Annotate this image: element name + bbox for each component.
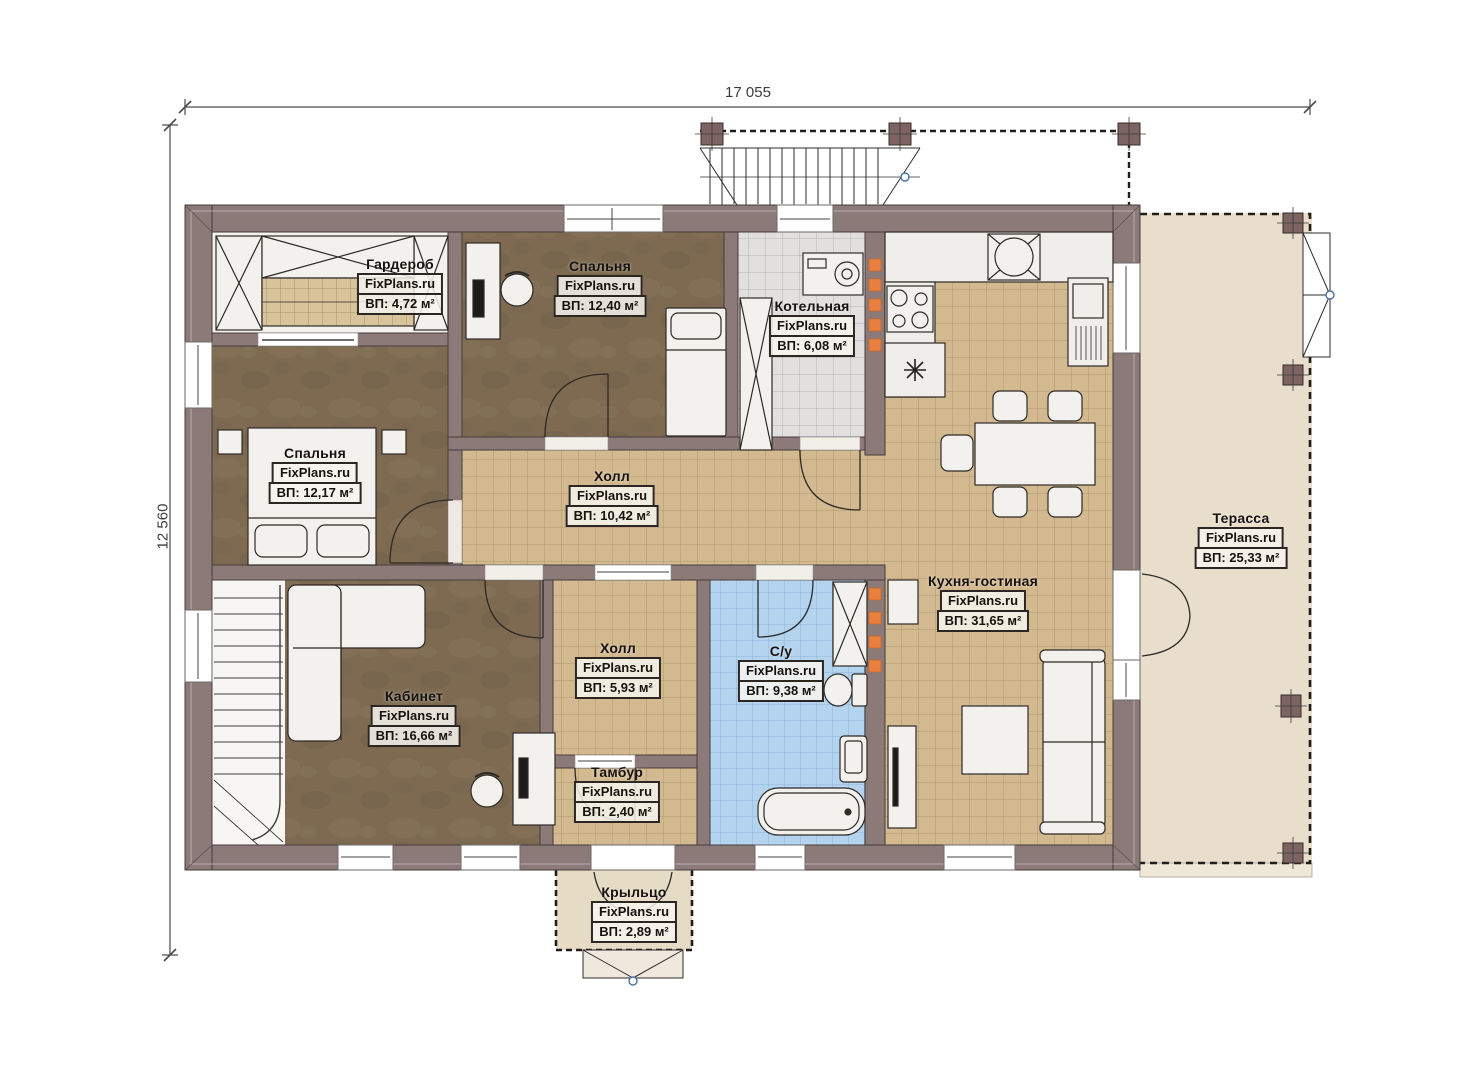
- hall-main-floor: [462, 450, 885, 565]
- watermark-badge: FixPlans.ru: [1198, 527, 1284, 549]
- room-title: Кабинет: [368, 688, 461, 704]
- porch-step: [583, 950, 683, 985]
- watermark-badge: FixPlans.ru: [738, 660, 824, 682]
- deck-stair: [695, 117, 1146, 213]
- watermark-badge: FixPlans.ru: [591, 901, 677, 923]
- dimension-width: 17 055: [703, 84, 793, 101]
- room-area: ВП: 12,17 м²: [269, 482, 362, 504]
- watermark-badge: FixPlans.ru: [940, 590, 1026, 612]
- room-label-bedroom-left: Спальня FixPlans.ru ВП: 12,17 м²: [269, 445, 362, 504]
- room-label-hall-small: Холл FixPlans.ru ВП: 5,93 м²: [575, 640, 661, 699]
- room-area: ВП: 5,93 м²: [575, 677, 661, 699]
- room-area: ВП: 2,40 м²: [574, 801, 660, 823]
- room-title: Холл: [575, 640, 661, 656]
- room-title: Кухня-гостиная: [928, 573, 1038, 589]
- room-title: Терасса: [1195, 510, 1288, 526]
- room-title: Котельная: [769, 298, 855, 314]
- room-label-hall-main: Холл FixPlans.ru ВП: 10,42 м²: [566, 468, 659, 527]
- room-label-bathroom: С/у FixPlans.ru ВП: 9,38 м²: [738, 643, 824, 702]
- watermark-badge: FixPlans.ru: [557, 275, 643, 297]
- terrace-outdoor-stair: [1303, 233, 1334, 357]
- room-label-vestibule: Тамбур FixPlans.ru ВП: 2,40 м²: [574, 764, 660, 823]
- room-area: ВП: 9,38 м²: [738, 680, 824, 702]
- post-ticks: [695, 117, 1146, 151]
- room-label-terrace: Терасса FixPlans.ru ВП: 25,33 м²: [1195, 510, 1288, 569]
- room-area: ВП: 16,66 м²: [368, 725, 461, 747]
- room-area: ВП: 12,40 м²: [554, 295, 647, 317]
- floor-plan: Гардероб FixPlans.ru ВП: 4,72 м² Спальня…: [0, 0, 1473, 1080]
- watermark-badge: FixPlans.ru: [272, 462, 358, 484]
- watermark-badge: FixPlans.ru: [569, 485, 655, 507]
- room-title: Спальня: [269, 445, 362, 461]
- room-area: ВП: 10,42 м²: [566, 505, 659, 527]
- room-label-office: Кабинет FixPlans.ru ВП: 16,66 м²: [368, 688, 461, 747]
- dimension-height: 12 560: [155, 490, 172, 564]
- watermark-badge: FixPlans.ru: [769, 315, 855, 337]
- room-title: Тамбур: [574, 764, 660, 780]
- room-area: ВП: 31,65 м²: [937, 610, 1030, 632]
- staircase-floor: [212, 580, 285, 845]
- room-area: ВП: 25,33 м²: [1195, 547, 1288, 569]
- watermark-badge: FixPlans.ru: [357, 273, 443, 295]
- room-title: Холл: [566, 468, 659, 484]
- room-title: Спальня: [554, 258, 647, 274]
- room-title: С/у: [738, 643, 824, 659]
- room-area: ВП: 2,89 м²: [591, 921, 677, 943]
- room-label-porch: Крыльцо FixPlans.ru ВП: 2,89 м²: [591, 884, 677, 943]
- room-area: ВП: 4,72 м²: [357, 293, 443, 315]
- watermark-badge: FixPlans.ru: [575, 657, 661, 679]
- room-label-boiler-room: Котельная FixPlans.ru ВП: 6,08 м²: [769, 298, 855, 357]
- watermark-badge: FixPlans.ru: [574, 781, 660, 803]
- room-title: Гардероб: [357, 256, 443, 272]
- watermark-badge: FixPlans.ru: [371, 705, 457, 727]
- room-label-kitchen-living: Кухня-гостиная FixPlans.ru ВП: 31,65 м²: [928, 573, 1038, 632]
- room-title: Крыльцо: [591, 884, 677, 900]
- room-label-bedroom-top: Спальня FixPlans.ru ВП: 12,40 м²: [554, 258, 647, 317]
- room-area: ВП: 6,08 м²: [769, 335, 855, 357]
- room-label-wardrobe: Гардероб FixPlans.ru ВП: 4,72 м²: [357, 256, 443, 315]
